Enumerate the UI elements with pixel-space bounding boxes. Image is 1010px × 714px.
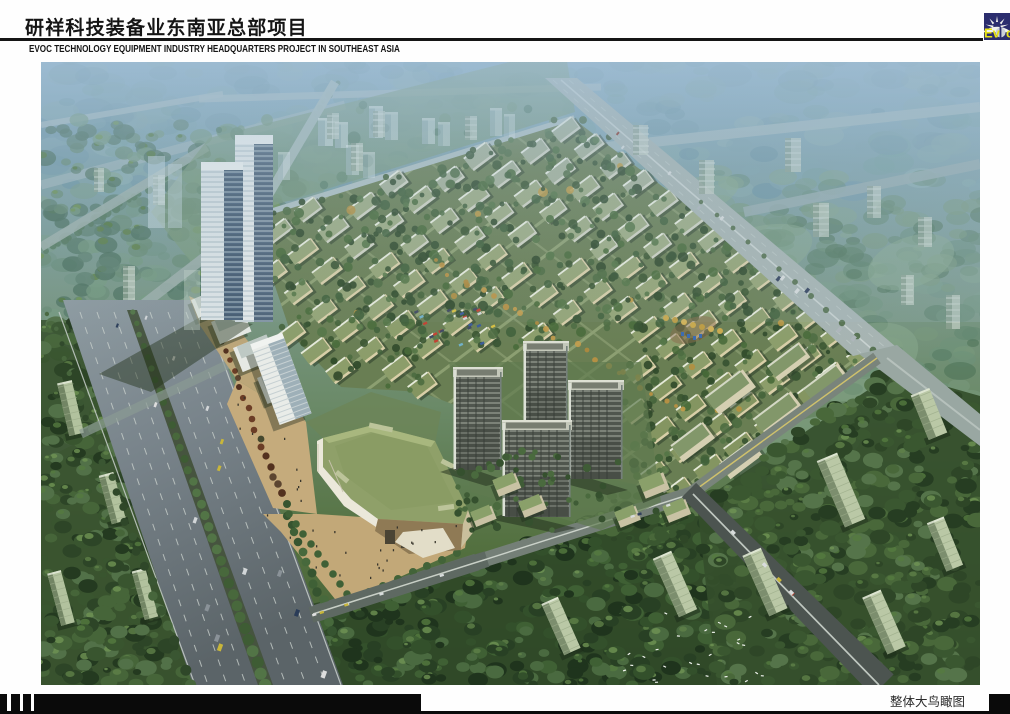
svg-text:c: c xyxy=(1006,26,1010,41)
svg-text:Ev: Ev xyxy=(984,26,1001,41)
